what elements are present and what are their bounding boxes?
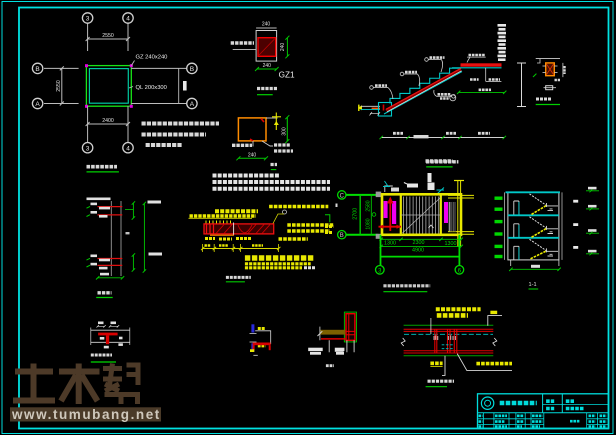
svg-text:240: 240	[263, 63, 272, 69]
svg-text:2550: 2550	[102, 33, 114, 39]
svg-text:B: B	[35, 66, 39, 73]
svg-text:A: A	[190, 101, 195, 108]
svg-text:B: B	[340, 233, 344, 239]
svg-text:www.tumubang.net: www.tumubang.net	[11, 407, 161, 422]
svg-text:GZ1: GZ1	[279, 71, 295, 80]
svg-text:A: A	[35, 101, 40, 108]
svg-text:3: 3	[86, 16, 90, 23]
svg-text:1080: 1080	[366, 218, 372, 229]
svg-text:1300: 1300	[445, 241, 457, 247]
svg-text:240: 240	[248, 153, 257, 159]
svg-text:240: 240	[280, 43, 286, 52]
svg-text:2550: 2550	[56, 80, 62, 92]
svg-text:4900: 4900	[412, 248, 424, 254]
svg-text:2300: 2300	[413, 240, 425, 246]
svg-text:1-1: 1-1	[529, 282, 537, 288]
svg-text:300: 300	[282, 127, 288, 136]
svg-text:4: 4	[126, 145, 130, 152]
svg-text:240: 240	[262, 22, 271, 28]
svg-text:GZ 240x240: GZ 240x240	[136, 55, 168, 61]
svg-text:QL 200x300: QL 200x300	[136, 85, 167, 91]
svg-text:4: 4	[126, 16, 130, 23]
svg-text:3: 3	[86, 145, 90, 152]
svg-text:C: C	[340, 193, 345, 199]
svg-text:1300: 1300	[384, 240, 396, 246]
svg-text:B: B	[190, 66, 194, 73]
svg-text:2580: 2580	[366, 200, 372, 211]
svg-text:2400: 2400	[102, 118, 114, 124]
svg-text:2700: 2700	[353, 208, 359, 220]
